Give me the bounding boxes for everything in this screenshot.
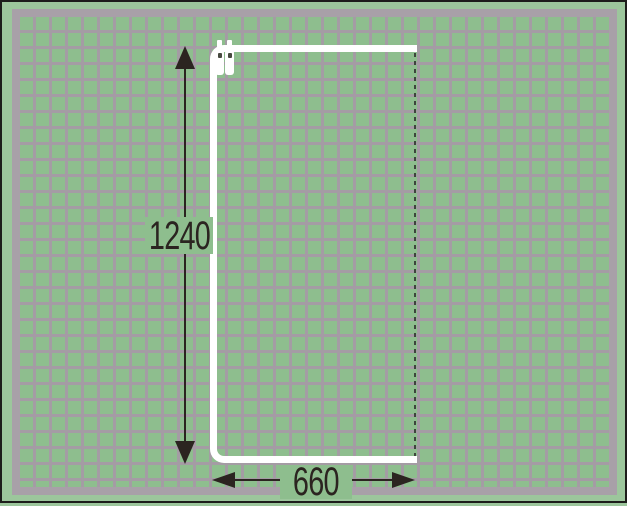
shower-curtain-rail (210, 45, 417, 463)
arrow-down-icon (175, 441, 195, 464)
arrow-left-icon (212, 472, 235, 488)
curtain-glider-icon (225, 50, 234, 75)
width-value: 660 (293, 462, 339, 502)
width-dimension-label: 660 (280, 465, 352, 499)
curtain-glider-icon (215, 50, 224, 75)
arrow-right-icon (392, 472, 415, 488)
glider-hole (218, 53, 222, 58)
arrow-up-icon (175, 46, 195, 69)
height-dimension-label: 1240 (145, 217, 213, 254)
height-value: 1240 (148, 216, 209, 256)
diagram-canvas: 1240 660 (0, 0, 627, 506)
glider-hole (228, 53, 232, 58)
